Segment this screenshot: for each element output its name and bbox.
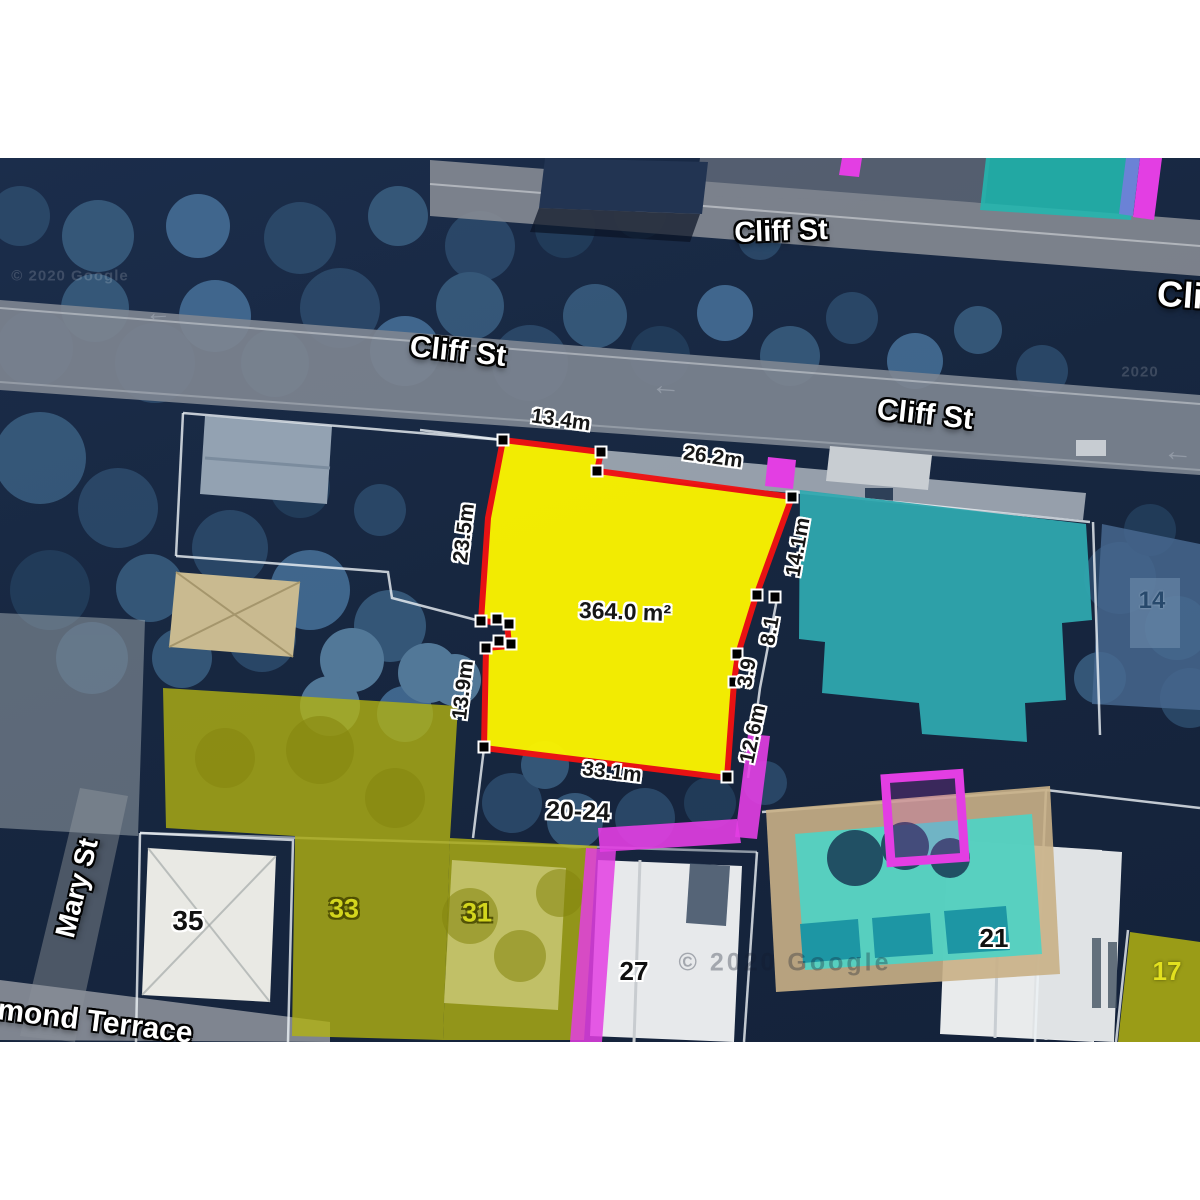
olive-parcel-17 [1118, 932, 1200, 1042]
magenta-strip-top [839, 158, 862, 177]
street-label-cliff-st-edge: Cliff [1156, 276, 1200, 317]
lot-label-21: 21 [980, 925, 1009, 951]
pan-arrow-left-icon: ← [1162, 436, 1194, 468]
google-attribution-center: © 2020 Google [678, 951, 891, 976]
lot-label-35: 35 [172, 907, 203, 935]
lot-label-14: 14 [1139, 589, 1166, 613]
lot-label-33: 33 [329, 896, 359, 923]
teal-parcel-topright [980, 158, 1138, 220]
lot-label-27: 27 [620, 958, 649, 984]
pan-arrow-left-icon: ← [144, 298, 171, 325]
pan-arrow-left-icon: ← [650, 370, 682, 402]
magenta-outline-rect [885, 774, 965, 863]
lot-label-31: 31 [462, 900, 492, 927]
aerial-map[interactable]: Cliff St Cliff St Cliff St Cliff Mary St… [0, 158, 1200, 1042]
teal-building [799, 490, 1092, 742]
street-label-cliff-st-top: Cliff St [734, 216, 828, 248]
magenta-rect-parcel-corner [765, 457, 796, 489]
screenshot-canvas: Cliff St Cliff St Cliff St Cliff Mary St… [0, 0, 1200, 1200]
google-attribution-right: 2020 [1121, 365, 1158, 380]
parcel-address-label: 20-24 [546, 798, 611, 825]
parcel-area-label: 364.0 m² [579, 599, 672, 625]
lot-label-17: 17 [1153, 958, 1182, 984]
dimension-label-right-mid-lower: 3.9 [734, 657, 760, 689]
dimension-label-right-mid-upper: 8.1 [757, 615, 783, 647]
google-attribution-left: © 2020 Google [11, 269, 128, 284]
